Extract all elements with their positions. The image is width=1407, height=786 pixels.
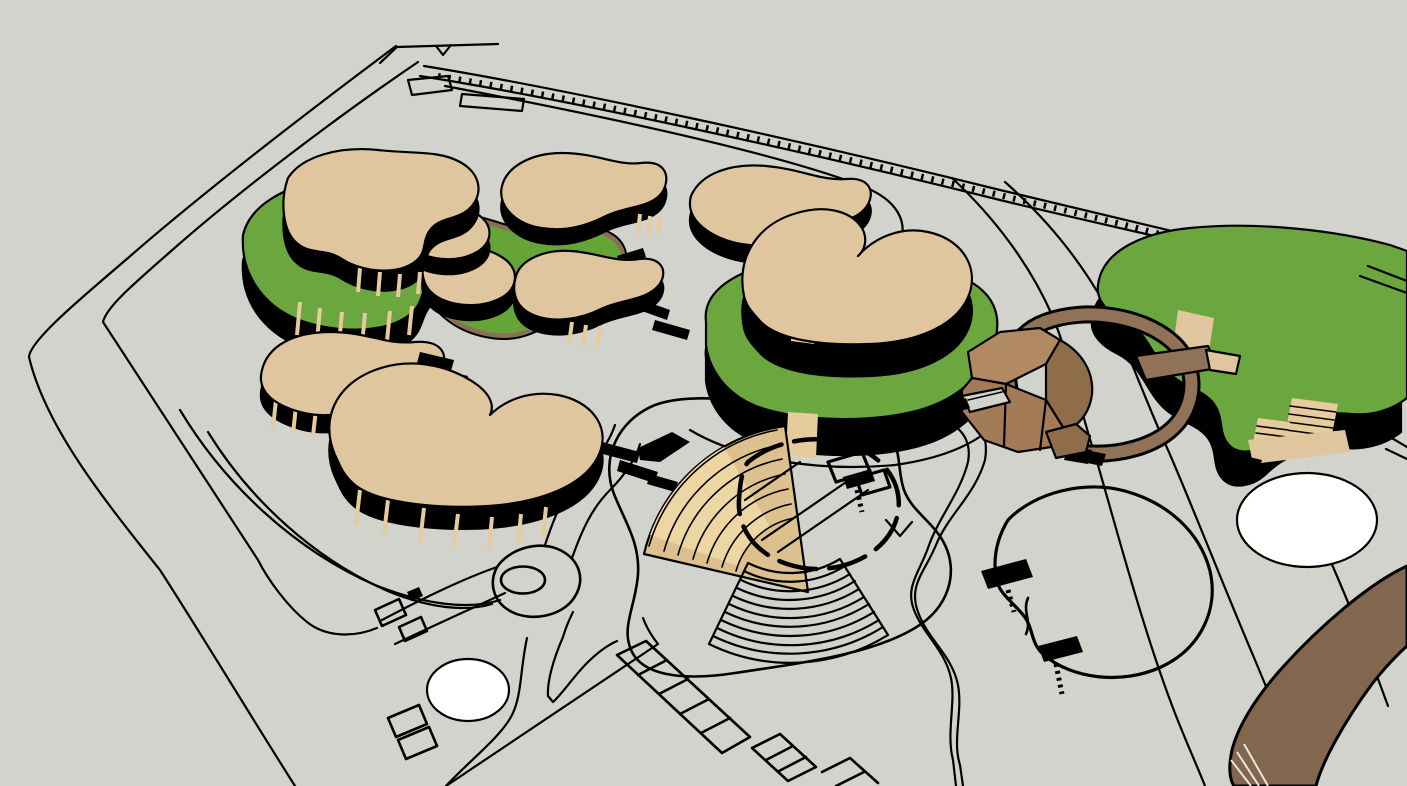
pond-white-east (1237, 473, 1377, 567)
central-podium-entry-strip (786, 412, 818, 458)
model-stage (0, 0, 1407, 786)
pond-white-southwest (427, 659, 509, 721)
lake-shore-zigzag (1026, 598, 1028, 634)
3d-viewport[interactable] (0, 0, 1407, 786)
